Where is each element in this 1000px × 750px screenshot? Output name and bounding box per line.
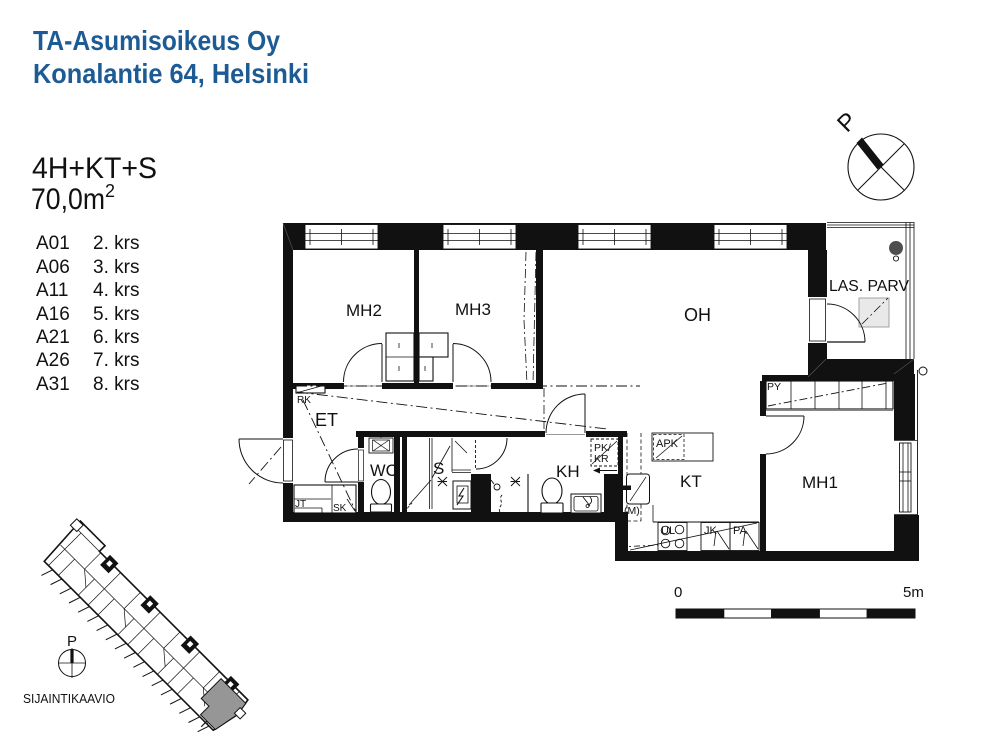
svg-text:7. krs: 7. krs xyxy=(93,350,139,371)
svg-text:A11: A11 xyxy=(36,280,68,301)
svg-text:APK: APK xyxy=(656,438,679,450)
svg-text:P: P xyxy=(67,633,77,650)
svg-text:A21: A21 xyxy=(36,327,70,348)
svg-text:5m: 5m xyxy=(903,584,924,601)
svg-text:RK: RK xyxy=(297,395,311,406)
svg-text:SIJAINTIKAAVIO: SIJAINTIKAAVIO xyxy=(23,691,115,706)
svg-text:MH2: MH2 xyxy=(346,301,382,320)
svg-text:70,0m: 70,0m xyxy=(31,183,105,216)
svg-text:WC: WC xyxy=(370,462,398,480)
svg-text:KT: KT xyxy=(680,472,702,491)
svg-text:2: 2 xyxy=(105,181,115,201)
svg-text:MH1: MH1 xyxy=(802,473,838,492)
svg-text:S: S xyxy=(433,459,444,478)
svg-text:A31: A31 xyxy=(36,374,70,395)
svg-text:(M): (M) xyxy=(624,505,640,517)
svg-text:LAS. PARV: LAS. PARV xyxy=(829,278,910,295)
svg-text:JK: JK xyxy=(704,525,718,537)
svg-text:MH3: MH3 xyxy=(455,300,491,319)
svg-text:Konalantie 64, Helsinki: Konalantie 64, Helsinki xyxy=(33,58,309,89)
svg-text:A06: A06 xyxy=(36,257,70,278)
svg-text:PY: PY xyxy=(767,381,781,393)
svg-text:KR: KR xyxy=(594,453,609,465)
svg-text:5. krs: 5. krs xyxy=(93,304,139,325)
svg-text:SK: SK xyxy=(333,503,347,514)
svg-text:KH: KH xyxy=(556,462,580,481)
svg-text:JT: JT xyxy=(295,499,306,510)
svg-text:6. krs: 6. krs xyxy=(93,327,139,348)
svg-text:A01: A01 xyxy=(36,233,70,254)
svg-text:A16: A16 xyxy=(36,304,70,325)
svg-text:ET: ET xyxy=(315,410,338,430)
svg-text:TA-Asumisoikeus Oy: TA-Asumisoikeus Oy xyxy=(33,25,280,56)
svg-text:A26: A26 xyxy=(36,350,70,371)
svg-text:8. krs: 8. krs xyxy=(93,374,139,395)
svg-text:OH: OH xyxy=(684,305,711,325)
svg-text:0: 0 xyxy=(674,584,682,601)
svg-text:4. krs: 4. krs xyxy=(93,280,139,301)
svg-text:4H+KT+S: 4H+KT+S xyxy=(32,152,157,185)
svg-text:PA: PA xyxy=(733,525,748,537)
svg-text:3. krs: 3. krs xyxy=(93,257,139,278)
svg-text:UL: UL xyxy=(661,525,675,537)
svg-text:P: P xyxy=(832,107,862,137)
svg-text:2. krs: 2. krs xyxy=(93,233,139,254)
